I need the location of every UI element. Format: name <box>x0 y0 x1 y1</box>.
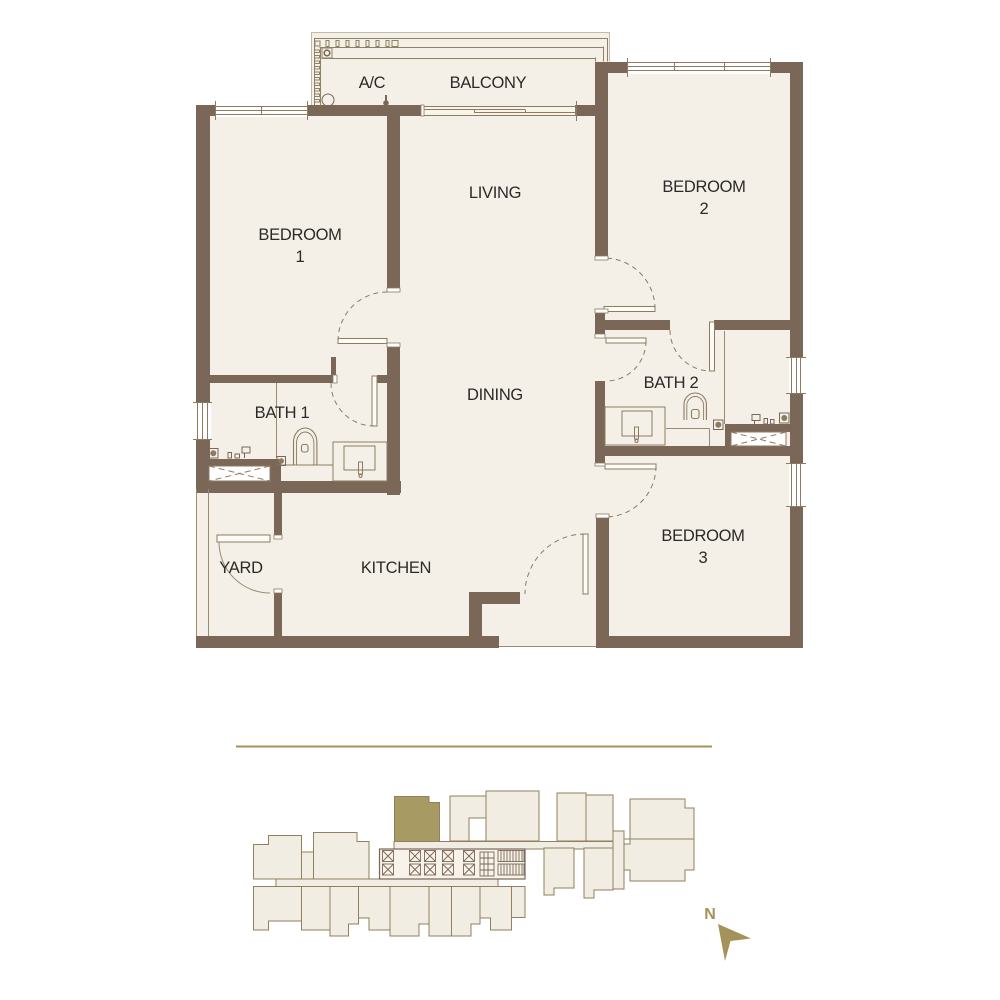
svg-text:BATH 2: BATH 2 <box>644 374 699 392</box>
svg-text:BEDROOM: BEDROOM <box>258 226 341 244</box>
svg-text:1: 1 <box>296 248 305 266</box>
svg-text:LIVING: LIVING <box>469 184 521 202</box>
svg-text:2: 2 <box>700 200 709 218</box>
svg-text:N: N <box>704 906 716 923</box>
svg-text:BALCONY: BALCONY <box>450 74 527 92</box>
svg-text:A/C: A/C <box>359 74 386 92</box>
svg-text:BATH 1: BATH 1 <box>255 404 310 422</box>
svg-text:KITCHEN: KITCHEN <box>361 559 431 577</box>
svg-text:YARD: YARD <box>219 559 263 577</box>
svg-text:BEDROOM: BEDROOM <box>661 527 744 545</box>
svg-text:BEDROOM: BEDROOM <box>662 178 745 196</box>
svg-text:3: 3 <box>699 549 708 567</box>
svg-text:DINING: DINING <box>467 386 523 404</box>
